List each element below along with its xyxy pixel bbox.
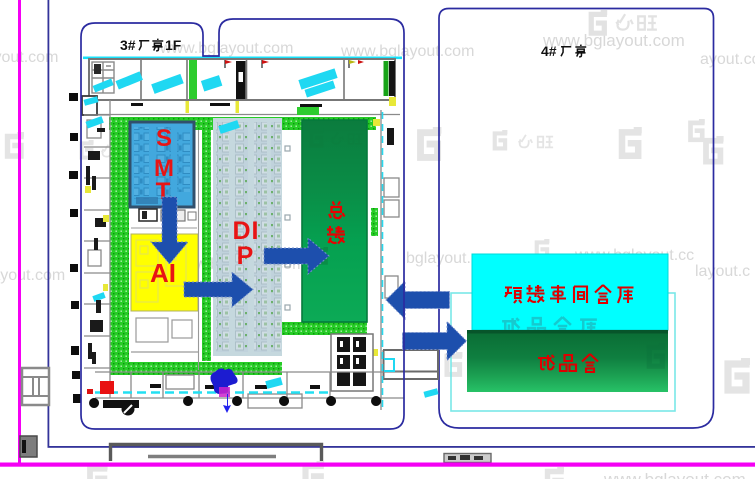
svg-text:www.bglayout.com: www.bglayout.com [0, 49, 58, 66]
svg-text:bglayout.com: bglayout.com [0, 267, 65, 284]
svg-text:3#: 3# [120, 37, 136, 53]
svg-text:DI: DI [233, 217, 260, 245]
svg-text:P: P [237, 242, 254, 270]
svg-text:www.bglayout.com: www.bglayout.com [603, 470, 746, 479]
svg-text:1F: 1F [165, 37, 182, 53]
svg-text:S: S [156, 125, 172, 152]
svg-text:AI: AI [150, 258, 176, 288]
svg-text:4#: 4# [541, 43, 557, 59]
